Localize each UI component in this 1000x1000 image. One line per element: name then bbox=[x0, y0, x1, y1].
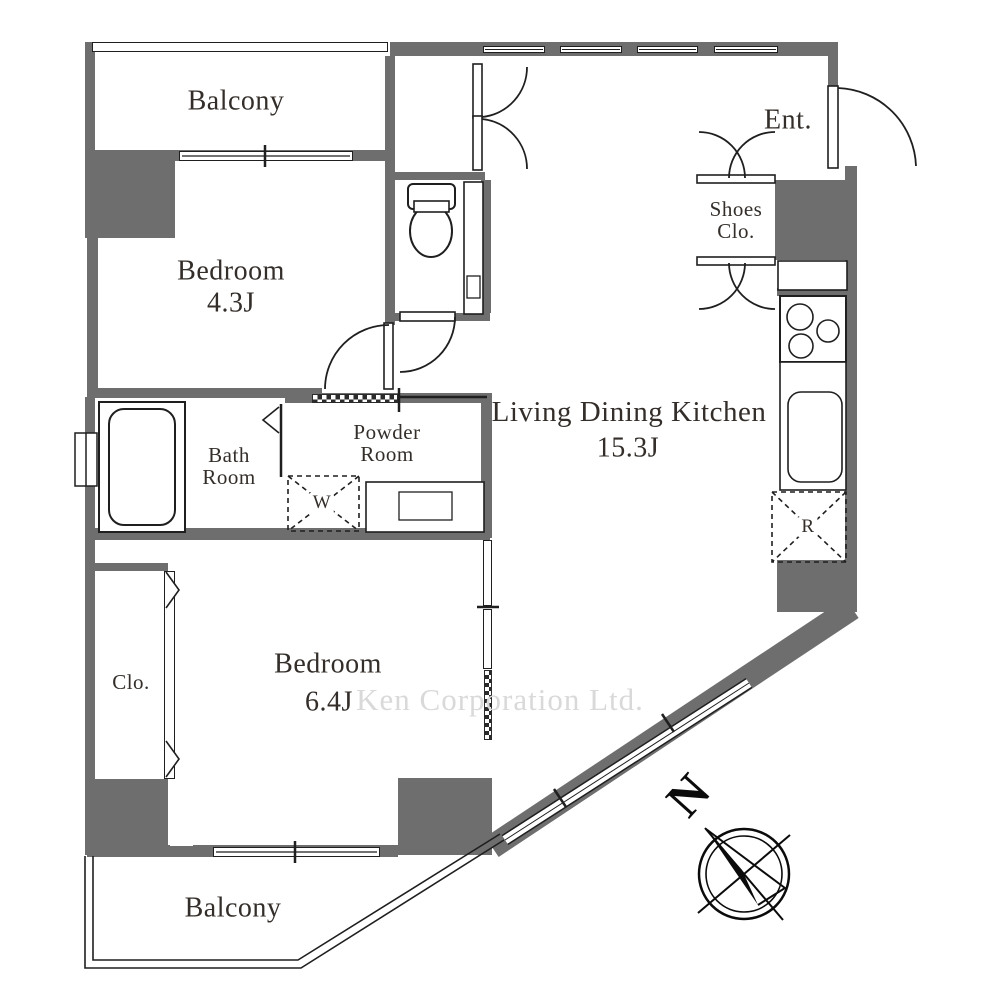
ldk-top-window-2 bbox=[560, 46, 622, 53]
bedroom1-window bbox=[179, 151, 353, 161]
wall-right bbox=[845, 166, 857, 566]
compass-needle-dark bbox=[706, 829, 758, 905]
shoes-door-arc-br bbox=[729, 263, 775, 309]
balcony-top-railing bbox=[92, 42, 388, 52]
toilet-door-arc bbox=[400, 317, 455, 372]
room-size-bedroom1: 4.3J bbox=[207, 288, 255, 317]
hall-closet-door-arc-bottom bbox=[482, 119, 527, 169]
room-label-shoes-closet: Shoes Clo. bbox=[710, 198, 763, 242]
shoes-door-arc-tl bbox=[699, 132, 745, 178]
ldk-top-window-4 bbox=[714, 46, 778, 53]
bath-line2: Room bbox=[202, 466, 255, 488]
room-label-closet: Clo. bbox=[112, 671, 150, 693]
wall-entrance-stub bbox=[828, 48, 838, 88]
shoes-door-arc-tr bbox=[729, 132, 775, 178]
powder-line1: Powder bbox=[353, 421, 420, 443]
wall-toilet-right bbox=[481, 180, 491, 313]
bathtub-icon bbox=[99, 402, 185, 532]
wall-closet-toilet-divider bbox=[393, 172, 485, 180]
wall-kitchen-divider bbox=[777, 288, 847, 296]
washer-label: W bbox=[310, 493, 334, 513]
bath-line1: Bath bbox=[208, 444, 250, 466]
hall-closet-door-arc-top bbox=[482, 67, 527, 117]
wall-powder-right bbox=[481, 393, 492, 538]
room-label-powder: Powder Room bbox=[353, 421, 420, 465]
bedroom2-sliding-door-panel-1 bbox=[483, 540, 492, 606]
floor-plan: Balcony Bedroom 4.3J Ent. Shoes Clo. Liv… bbox=[0, 0, 1000, 1000]
powder-line2: Room bbox=[360, 443, 413, 465]
compass-north-label: N bbox=[654, 762, 721, 828]
wall-toilet-bottom-stub-right bbox=[453, 313, 490, 321]
room-size-bedroom2: 6.4J bbox=[305, 687, 353, 716]
ldk-diagonal-wall bbox=[492, 608, 852, 847]
entrance-door-arc bbox=[838, 88, 916, 166]
wall-bedroom2-left bbox=[85, 537, 95, 782]
wall-block-kitchen-bottom bbox=[777, 560, 857, 612]
wall-bedroom1-left bbox=[87, 238, 98, 398]
wall-bedroom1-right bbox=[385, 56, 395, 325]
wall-block-bedroom2-corner bbox=[398, 778, 492, 855]
kitchen-cabinet-icon bbox=[778, 261, 847, 290]
wall-closet-shelf-divider bbox=[95, 563, 168, 571]
room-label-entrance: Ent. bbox=[764, 105, 812, 134]
room-label-bedroom2: Bedroom bbox=[274, 649, 382, 678]
room-label-balcony-bottom: Balcony bbox=[185, 893, 282, 922]
bedroom1-door-arc bbox=[325, 325, 389, 389]
wall-balcony-left bbox=[85, 42, 95, 152]
wall-pillar-topleft bbox=[85, 150, 175, 238]
compass-icon bbox=[698, 828, 790, 920]
shoes-closet-line2: Clo. bbox=[717, 220, 755, 242]
bedroom2-sliding-door-panel-2 bbox=[483, 609, 492, 669]
kitchen-sink-icon bbox=[780, 362, 846, 490]
stove-icon bbox=[780, 296, 846, 362]
bedroom2-window bbox=[213, 847, 380, 857]
closet-folding-door bbox=[164, 571, 175, 779]
wall-toilet-bottom-stub-left bbox=[387, 313, 400, 321]
wall-bath-bottom bbox=[85, 528, 490, 540]
room-label-bath: Bath Room bbox=[202, 444, 255, 488]
compass-needle-outline bbox=[706, 829, 785, 905]
ldk-top-window-1 bbox=[483, 46, 545, 53]
bath-folding-door bbox=[263, 404, 281, 477]
room-size-ldk: 15.3J bbox=[597, 433, 659, 462]
room-label-balcony-top: Balcony bbox=[188, 86, 285, 115]
watermark: Ken Corporation Ltd. bbox=[356, 682, 644, 718]
shoes-closet-line1: Shoes bbox=[710, 198, 763, 220]
wall-notch bbox=[170, 833, 193, 846]
toilet-icon bbox=[408, 184, 455, 257]
vanity-icon bbox=[366, 482, 484, 532]
room-label-ldk: Living Dining Kitchen bbox=[492, 397, 767, 427]
wall-bath-left bbox=[85, 397, 95, 537]
wall-block-bottomleft bbox=[85, 779, 168, 855]
ldk-top-window-3 bbox=[637, 46, 698, 53]
fridge-label: R bbox=[798, 517, 817, 537]
room-label-bedroom1: Bedroom bbox=[177, 256, 285, 285]
shoes-door-arc-bl bbox=[699, 263, 745, 309]
powder-sliding-door bbox=[312, 394, 398, 403]
